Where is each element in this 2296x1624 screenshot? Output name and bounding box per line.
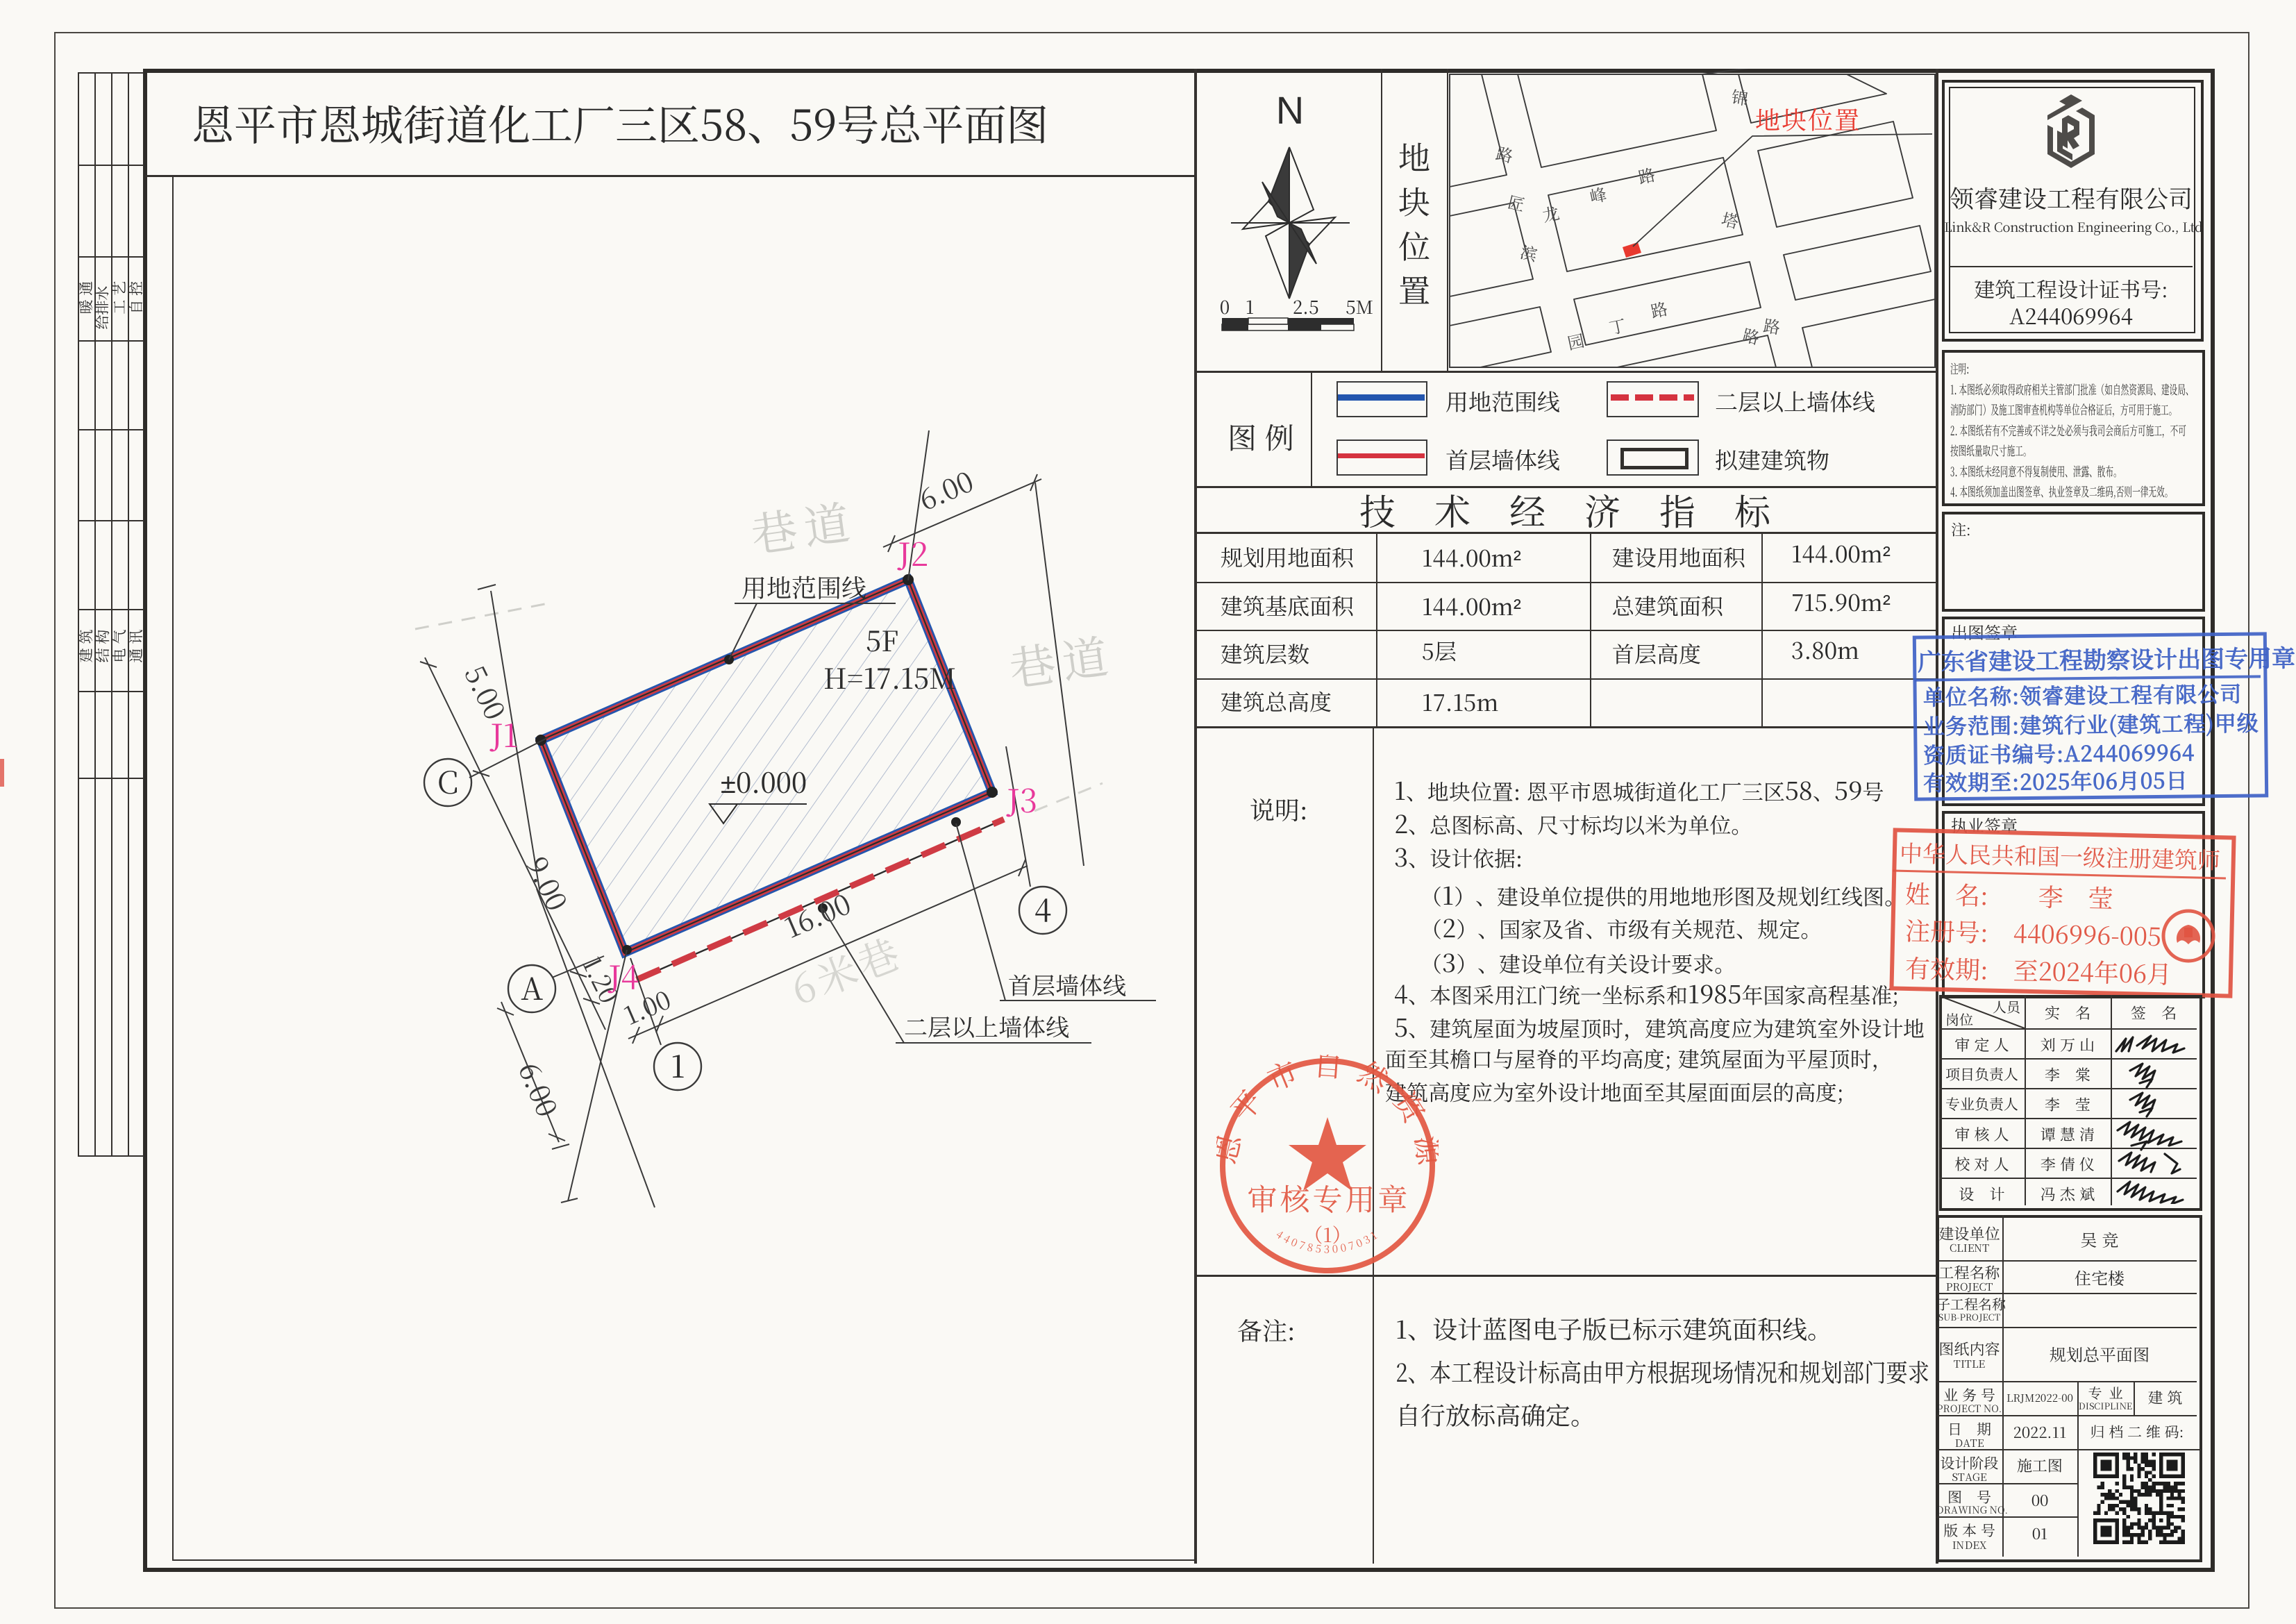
svg-text:锦: 锦 bbox=[1730, 83, 1750, 110]
svg-text:滨: 滨 bbox=[1518, 238, 1541, 266]
svg-text:5F: 5F bbox=[866, 620, 898, 660]
svg-text:匠: 匠 bbox=[1506, 188, 1528, 216]
svg-text:4: 4 bbox=[1034, 886, 1051, 930]
svg-text:用地范围线: 用地范围线 bbox=[741, 569, 866, 605]
svg-text:地块位置: 地块位置 bbox=[1755, 101, 1861, 137]
svg-text:±0.000: ±0.000 bbox=[721, 762, 807, 801]
svg-text:审核专用章: 审核专用章 bbox=[1248, 1177, 1411, 1219]
svg-text:J3: J3 bbox=[1006, 776, 1037, 822]
svg-text:塔: 塔 bbox=[1720, 206, 1742, 233]
svg-text:6.00: 6.00 bbox=[510, 1055, 569, 1122]
svg-text:路: 路 bbox=[1636, 161, 1657, 188]
svg-text:5M: 5M bbox=[1346, 294, 1373, 319]
svg-text:巷道: 巷道 bbox=[746, 485, 860, 565]
svg-text:16.00: 16.00 bbox=[778, 882, 856, 946]
svg-text:路: 路 bbox=[1648, 295, 1670, 322]
svg-text:1: 1 bbox=[671, 1042, 685, 1087]
svg-text:2.5: 2.5 bbox=[1293, 294, 1319, 319]
svg-text:1: 1 bbox=[1246, 294, 1254, 319]
svg-text:A: A bbox=[521, 964, 543, 1009]
svg-text:龙: 龙 bbox=[1540, 199, 1561, 226]
svg-text:二层以上墙体线: 二层以上墙体线 bbox=[904, 1009, 1069, 1043]
svg-text:峰: 峰 bbox=[1587, 181, 1609, 208]
svg-text:J4: J4 bbox=[607, 953, 639, 998]
svg-text:园: 园 bbox=[1565, 327, 1586, 354]
svg-text:H=17.15M: H=17.15M bbox=[823, 658, 956, 697]
svg-text:路: 路 bbox=[1761, 312, 1782, 339]
svg-text:J2: J2 bbox=[897, 530, 928, 576]
svg-text:0: 0 bbox=[1220, 294, 1230, 319]
svg-text:C: C bbox=[437, 758, 458, 803]
svg-text:首层墙体线: 首层墙体线 bbox=[1008, 967, 1126, 1001]
svg-text:J1: J1 bbox=[489, 711, 518, 757]
svg-text:N: N bbox=[1276, 88, 1304, 132]
svg-text:丁: 丁 bbox=[1607, 312, 1628, 339]
svg-text:路: 路 bbox=[1741, 321, 1763, 349]
svg-text:路: 路 bbox=[1494, 140, 1516, 167]
svg-text:9.00: 9.00 bbox=[518, 849, 578, 916]
